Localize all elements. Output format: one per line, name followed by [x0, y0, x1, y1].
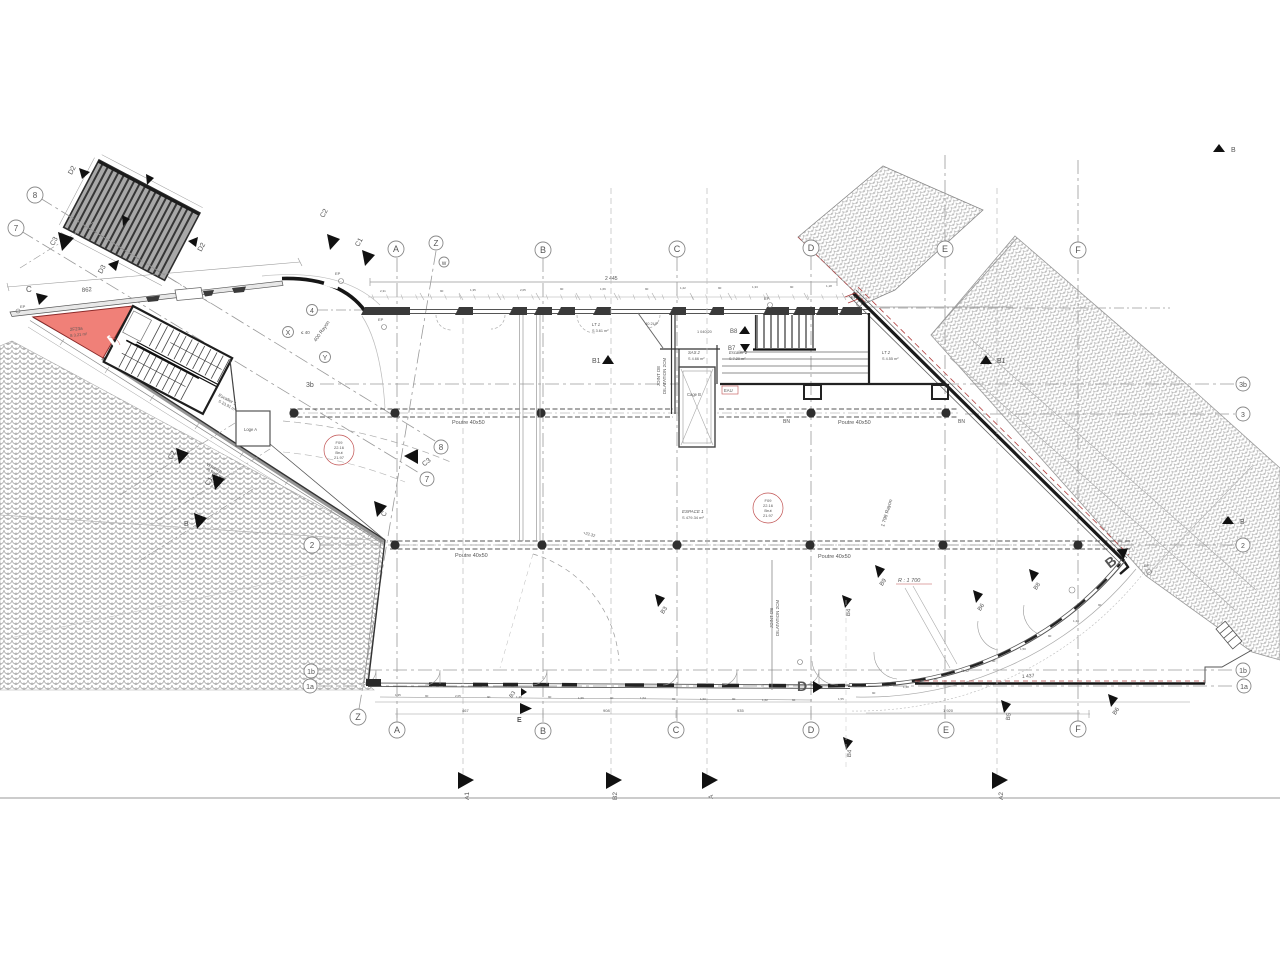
svg-text:S 4.66 m²: S 4.66 m²	[688, 357, 705, 361]
svg-text:1,66: 1,66	[578, 696, 584, 700]
svg-text:1,18: 1,18	[826, 284, 832, 288]
svg-text:S 3.61 m²: S 3.61 m²	[592, 329, 609, 333]
svg-text:B4: B4	[846, 608, 853, 616]
svg-text:2 445: 2 445	[605, 276, 618, 282]
svg-text:40 2UP: 40 2UP	[645, 321, 659, 326]
svg-text:D: D	[797, 678, 807, 694]
svg-text:7: 7	[425, 475, 430, 484]
svg-text:90: 90	[487, 695, 491, 699]
svg-text:21.97: 21.97	[334, 455, 345, 460]
svg-text:1 040,20: 1 040,20	[697, 330, 712, 334]
svg-text:1,52: 1,52	[963, 669, 969, 673]
svg-text:90: 90	[792, 698, 796, 702]
svg-text:R : 1 700: R : 1 700	[898, 578, 921, 584]
svg-text:B: B	[1240, 519, 1245, 526]
svg-text:2,05: 2,05	[520, 288, 526, 292]
svg-text:S 4.55 m²: S 4.55 m²	[882, 357, 899, 361]
svg-text:1,48: 1,48	[903, 685, 909, 689]
svg-text:90: 90	[672, 697, 676, 701]
svg-text:Loge A: Loge A	[244, 427, 257, 432]
svg-text:B: B	[1231, 147, 1236, 154]
svg-text:BN: BN	[783, 419, 790, 425]
svg-text:F: F	[1075, 245, 1081, 255]
svg-text:DILATATION 2CM: DILATATION 2CM	[662, 358, 667, 395]
svg-text:1a: 1a	[306, 684, 314, 691]
svg-text:X: X	[286, 330, 291, 337]
svg-text:E: E	[517, 717, 522, 724]
svg-text:S 7.20 m²: S 7.20 m²	[729, 357, 746, 361]
svg-text:SAS 2: SAS 2	[688, 350, 701, 355]
svg-text:90: 90	[1048, 634, 1052, 638]
svg-text:90: 90	[790, 285, 794, 289]
svg-text:A1: A1	[464, 792, 471, 800]
svg-text:1,50: 1,50	[1020, 647, 1026, 651]
svg-text:B: B	[540, 726, 546, 736]
svg-text:EP: EP	[764, 296, 770, 301]
svg-text:1,44: 1,44	[1073, 619, 1079, 623]
svg-text:2,05: 2,05	[455, 694, 461, 698]
svg-text:1,60: 1,60	[700, 697, 706, 701]
svg-text:B7: B7	[728, 346, 736, 352]
svg-text:B: B	[184, 521, 189, 528]
svg-text:JOINT DE: JOINT DE	[656, 366, 661, 386]
svg-text:EP: EP	[1144, 563, 1150, 568]
svg-text:4: 4	[310, 308, 314, 315]
svg-text:B1: B1	[997, 358, 1006, 365]
svg-text:908: 908	[603, 708, 610, 713]
svg-text:E: E	[943, 725, 949, 735]
svg-text:S 479.34 m²: S 479.34 m²	[682, 515, 704, 520]
svg-text:3: 3	[1241, 412, 1245, 419]
svg-text:90: 90	[645, 287, 649, 291]
svg-text:3b: 3b	[306, 382, 314, 389]
svg-text:C: C	[674, 244, 681, 254]
svg-text:w: w	[441, 261, 447, 267]
svg-text:DILATATION 2CM: DILATATION 2CM	[775, 600, 780, 637]
svg-text:LT 2: LT 2	[882, 350, 891, 355]
svg-text:A2: A2	[998, 792, 1005, 800]
svg-text:≤ 40: ≤ 40	[301, 330, 310, 335]
svg-text:1b: 1b	[1239, 668, 1247, 675]
svg-text:8: 8	[33, 191, 38, 200]
svg-text:JOINT DE: JOINT DE	[769, 608, 774, 628]
svg-text:B8: B8	[730, 329, 738, 335]
svg-text:1,33: 1,33	[752, 285, 758, 289]
svg-text:1,64: 1,64	[640, 696, 646, 700]
svg-text:862: 862	[82, 287, 93, 294]
svg-text:EP: EP	[378, 317, 384, 322]
svg-text:21.97: 21.97	[763, 513, 774, 518]
svg-text:2: 2	[310, 541, 315, 550]
svg-text:1a: 1a	[1240, 684, 1248, 691]
svg-text:1,35: 1,35	[395, 693, 401, 697]
svg-text:Z: Z	[434, 239, 439, 248]
svg-text:90: 90	[610, 696, 614, 700]
svg-text:90: 90	[718, 286, 722, 290]
svg-text:90: 90	[872, 691, 876, 695]
svg-text:Poutre 40x50: Poutre 40x50	[455, 553, 488, 559]
svg-text:90: 90	[560, 287, 564, 291]
svg-text:467: 467	[462, 708, 469, 713]
svg-text:1,62: 1,62	[762, 698, 768, 702]
svg-text:1 437: 1 437	[1022, 673, 1035, 680]
svg-text:1,35: 1,35	[470, 288, 476, 292]
svg-text:Poutre 40x50: Poutre 40x50	[818, 554, 851, 560]
svg-text:B1: B1	[592, 358, 601, 365]
svg-text:90: 90	[732, 697, 736, 701]
svg-text:C: C	[673, 725, 680, 735]
svg-text:Poutre 40x50: Poutre 40x50	[452, 420, 485, 426]
svg-text:BN: BN	[958, 419, 965, 425]
svg-text:90: 90	[1098, 603, 1102, 607]
svg-text:ESPACE 1: ESPACE 1	[682, 509, 704, 514]
svg-text:D: D	[808, 725, 815, 735]
svg-text:D: D	[808, 243, 815, 253]
svg-text:EP: EP	[335, 271, 341, 276]
svg-text:A: A	[394, 725, 400, 735]
svg-text:1b: 1b	[307, 669, 315, 676]
svg-text:B2: B2	[612, 792, 619, 800]
svg-text:Y: Y	[323, 355, 328, 362]
svg-text:1,55: 1,55	[838, 697, 844, 701]
svg-text:1,66: 1,66	[600, 287, 606, 291]
svg-text:B4: B4	[847, 749, 854, 757]
svg-text:90: 90	[992, 659, 996, 663]
svg-text:Poutre 40x50: Poutre 40x50	[838, 420, 871, 426]
svg-text:A: A	[393, 244, 399, 254]
svg-text:LT 1: LT 1	[592, 322, 600, 327]
svg-text:90: 90	[934, 677, 938, 681]
svg-text:2,31: 2,31	[380, 289, 386, 293]
svg-text:EP: EP	[20, 304, 26, 309]
svg-text:B: B	[540, 245, 546, 255]
svg-text:Cage B: Cage B	[687, 392, 701, 397]
svg-text:C: C	[26, 285, 32, 294]
svg-text:8: 8	[439, 443, 444, 452]
svg-text:90: 90	[425, 694, 429, 698]
svg-text:90: 90	[548, 695, 552, 699]
svg-text:90: 90	[440, 289, 444, 293]
svg-text:1 920: 1 920	[943, 708, 954, 713]
svg-text:F: F	[1075, 724, 1081, 734]
svg-text:3b: 3b	[1239, 382, 1247, 389]
svg-text:EP: EP	[851, 295, 857, 300]
svg-text:EAU: EAU	[724, 388, 733, 393]
svg-text:7: 7	[14, 224, 19, 233]
svg-text:Z: Z	[355, 712, 361, 722]
svg-text:2: 2	[1241, 543, 1245, 550]
svg-text:1,22: 1,22	[680, 286, 686, 290]
svg-text:935: 935	[737, 708, 744, 713]
svg-text:E: E	[942, 244, 948, 254]
